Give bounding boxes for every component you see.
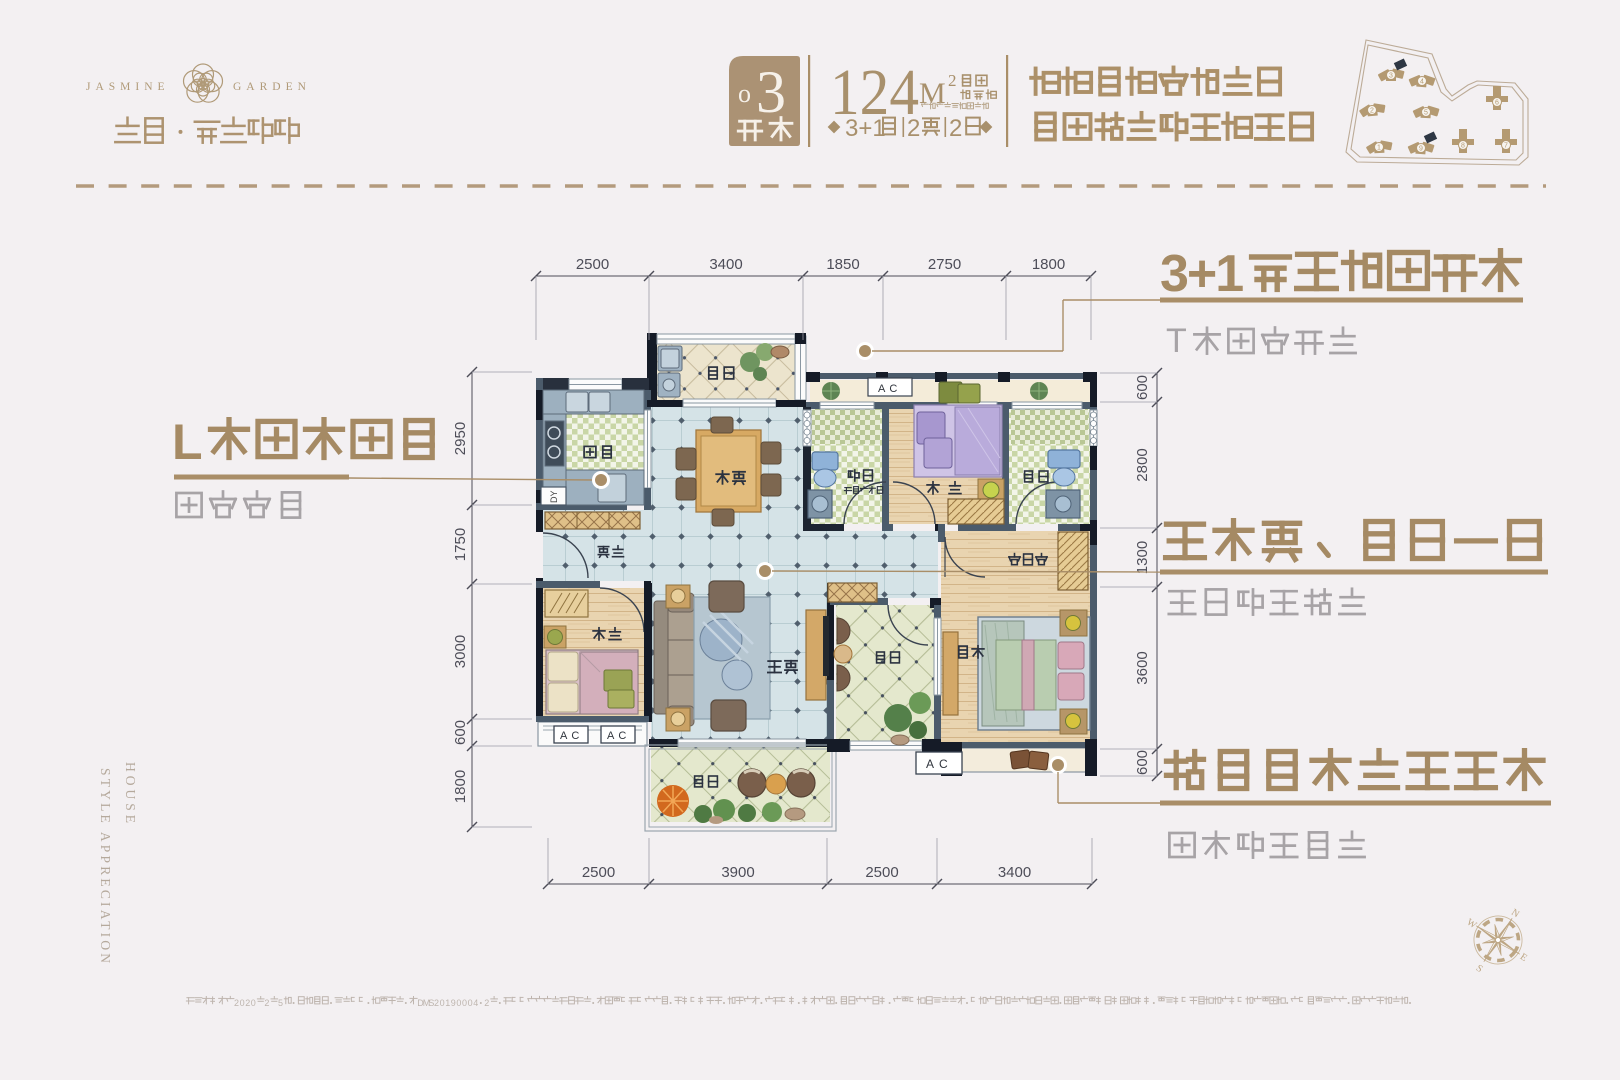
svg-text:1800: 1800 [452,770,469,803]
svg-text:2950: 2950 [452,422,469,455]
svg-text:8: 8 [1461,143,1465,150]
svg-text:2500: 2500 [865,864,898,881]
svg-text:0: 0 [468,998,473,1008]
svg-text:3400: 3400 [998,864,1031,881]
svg-text:HOUSE: HOUSE [123,762,138,827]
svg-text:o: o [738,79,751,108]
svg-text:3+1: 3+1 [1160,245,1243,303]
svg-text:2: 2 [949,115,962,142]
svg-text:GARDEN: GARDEN [233,81,311,93]
svg-text:AC: AC [607,730,630,742]
svg-text:2800: 2800 [1134,448,1151,481]
svg-text:STYLE APPRECIATION: STYLE APPRECIATION [98,768,113,966]
svg-text:6: 6 [1495,100,1499,107]
svg-text:2500: 2500 [582,864,615,881]
svg-text:T: T [1166,322,1187,360]
svg-text:600: 600 [452,720,469,745]
svg-text:9: 9 [451,998,456,1008]
svg-text:0: 0 [240,998,245,1008]
svg-text:7: 7 [1504,143,1508,150]
svg-text:3900: 3900 [721,864,754,881]
svg-text:2: 2 [245,998,250,1008]
svg-text:L: L [172,414,203,470]
svg-text:DY: DY [549,490,559,503]
svg-text:2: 2 [484,998,489,1008]
svg-text:1850: 1850 [826,256,859,273]
svg-text:1300: 1300 [1134,541,1151,574]
svg-text:2: 2 [1370,108,1374,115]
svg-text:E: E [1518,951,1529,964]
svg-text:4: 4 [1420,79,1424,86]
svg-text:2: 2 [264,998,269,1008]
svg-text:600: 600 [1134,750,1151,775]
svg-text:2750: 2750 [928,256,961,273]
svg-text:5: 5 [278,998,283,1008]
svg-text:2: 2 [434,998,439,1008]
svg-text:3+1: 3+1 [845,115,886,142]
svg-text:3600: 3600 [1134,651,1151,684]
svg-text:3400: 3400 [709,256,742,273]
svg-text:1750: 1750 [452,528,469,561]
svg-text:S: S [1474,963,1485,975]
svg-text:3: 3 [1389,73,1393,80]
svg-text:4: 4 [473,998,478,1008]
svg-text:2: 2 [907,115,920,142]
svg-text:0: 0 [462,998,467,1008]
svg-text:0: 0 [456,998,461,1008]
svg-text:JASMINE: JASMINE [86,81,170,93]
svg-text:2500: 2500 [576,256,609,273]
svg-text:AC: AC [560,730,583,742]
svg-text:0: 0 [440,998,445,1008]
svg-text:9: 9 [1419,146,1423,153]
svg-text:5: 5 [1424,110,1428,117]
svg-text:2: 2 [234,998,239,1008]
svg-text:1: 1 [445,998,450,1008]
svg-text:600: 600 [1134,375,1151,400]
svg-text:0: 0 [251,998,256,1008]
svg-text:2: 2 [948,71,957,90]
svg-text:3000: 3000 [452,635,469,668]
svg-text:3: 3 [756,59,786,125]
svg-text:1800: 1800 [1032,256,1065,273]
svg-text:AC: AC [926,757,953,771]
svg-text:N: N [1509,907,1521,920]
svg-text:AC: AC [878,383,901,395]
svg-text:1: 1 [1377,145,1381,152]
